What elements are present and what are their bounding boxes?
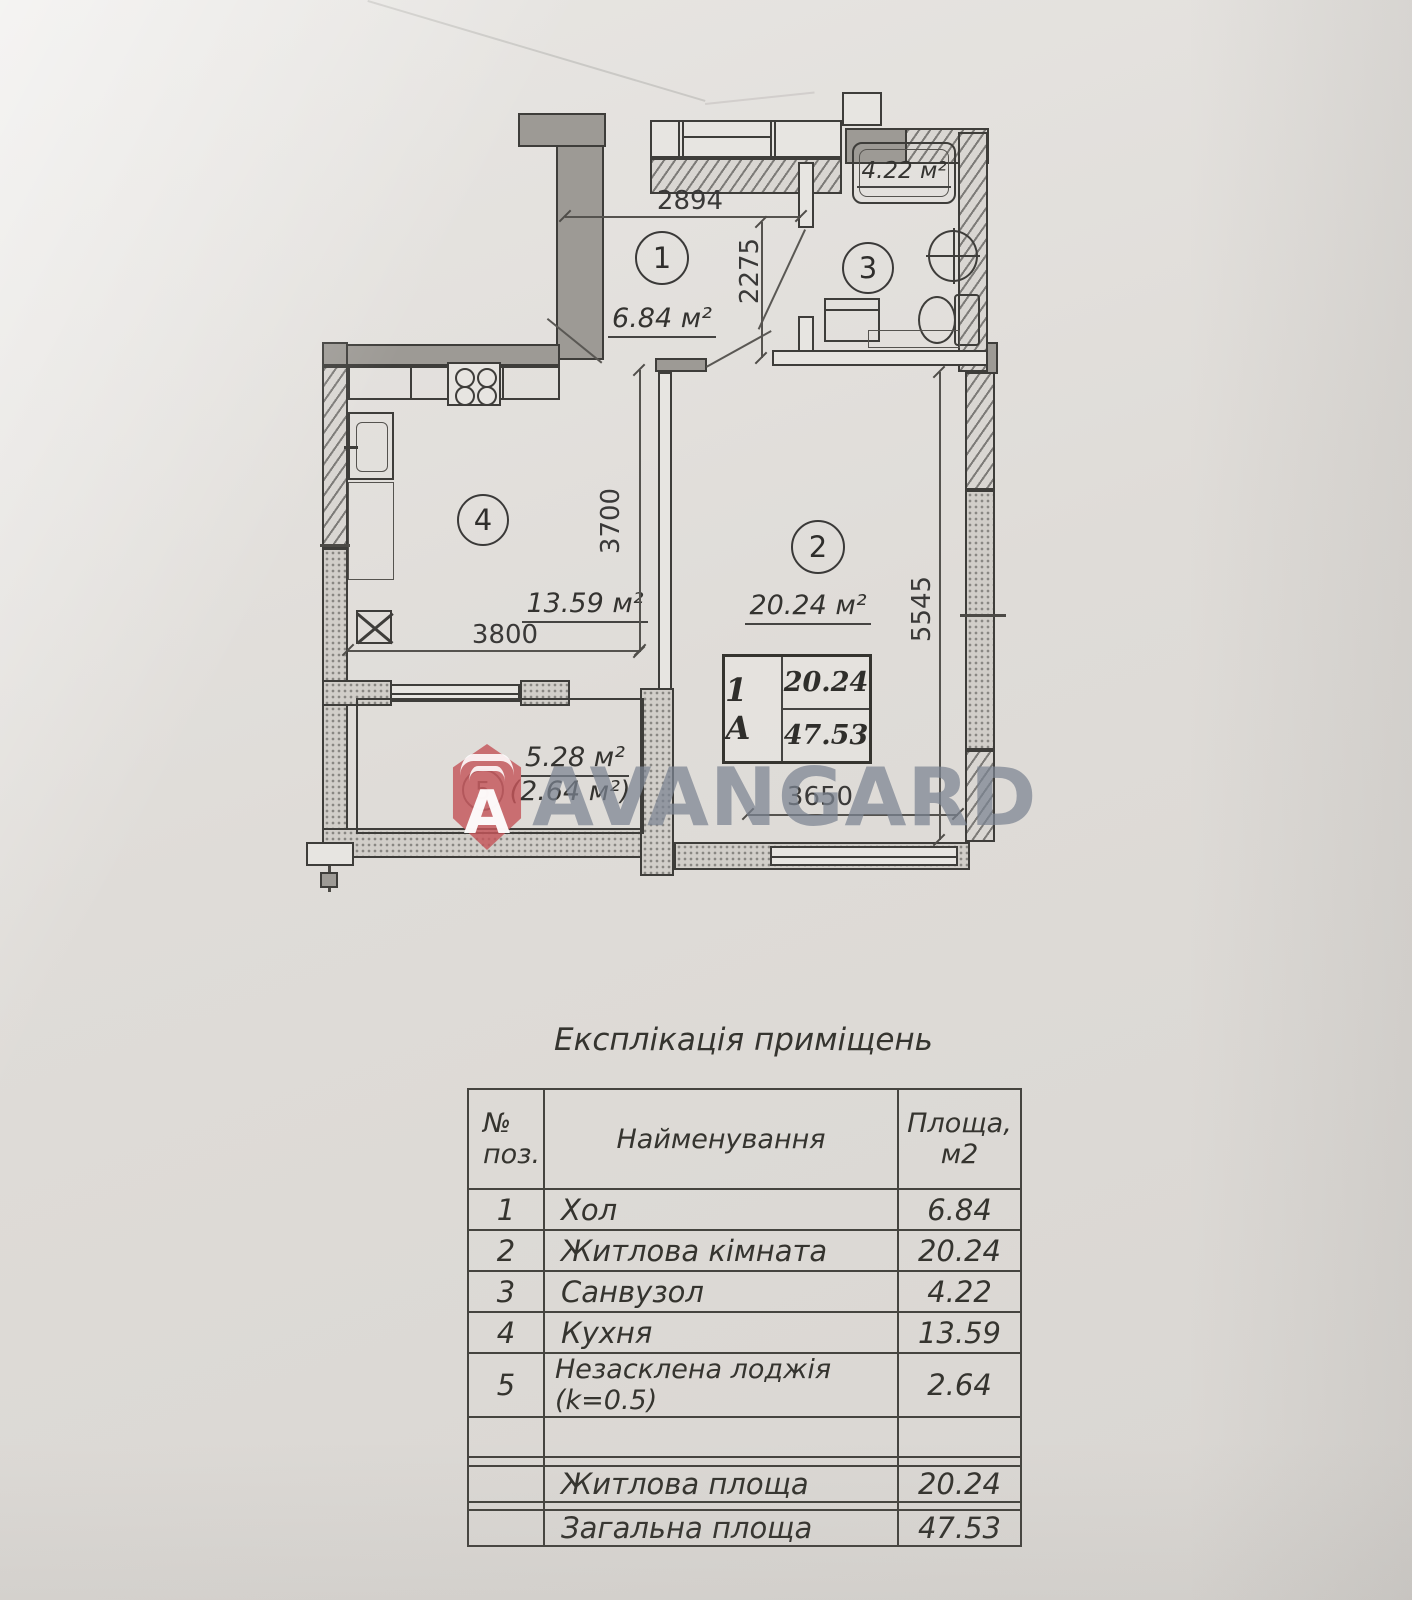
door-frame-mark: [678, 122, 684, 156]
paper-crease: [705, 92, 815, 105]
table-spacer-row: [468, 1457, 1021, 1466]
partition-wall: [798, 162, 814, 228]
entry-door: [650, 120, 842, 158]
living-area-label: 20.24 м²: [733, 590, 883, 625]
door-leaf-line: [684, 136, 770, 138]
window-midline: [392, 693, 518, 695]
partition-wall: [658, 372, 672, 690]
table-row: 3 Санвузол 4.22: [468, 1271, 1021, 1312]
washbasin-cross: [953, 228, 955, 284]
room-number-living: 2: [791, 520, 845, 574]
dimension-hall-width: 2894: [620, 186, 760, 216]
logo-letter: A: [450, 778, 524, 848]
wall-segment: [965, 490, 995, 750]
room-number-kitchen: 4: [457, 494, 509, 546]
wall-segment: [322, 342, 348, 366]
explication-section: Експлікація приміщень № поз. Найменуванн…: [467, 1022, 1020, 1547]
paper-crease: [367, 0, 705, 102]
room-number-hall: 1: [635, 231, 689, 285]
wall-segment: [965, 372, 995, 490]
kitchen-sink-icon: [348, 412, 394, 480]
dimension-line: [348, 650, 640, 652]
hall-area-label: 6.84 м²: [600, 303, 724, 338]
stove-burner: [477, 386, 497, 406]
dimension-kitchen-width: 3800: [440, 620, 570, 650]
kitchen-area-label: 13.59 м²: [515, 588, 655, 623]
stove-burner: [455, 368, 475, 388]
wall-segment: [322, 366, 348, 548]
entry-niche: [842, 92, 882, 126]
stove-icon: [447, 362, 501, 406]
unit-type: 1 А: [725, 657, 783, 761]
stove-burner: [477, 368, 497, 388]
dimension-kitchen-depth: 3700: [596, 476, 626, 566]
sink-basin: [356, 422, 388, 472]
table-summary-row: Житлова площа 20.24: [468, 1466, 1021, 1502]
unit-living-area: 20.24: [783, 657, 869, 710]
table-spacer-row: [468, 1502, 1021, 1510]
table-row: 1 Хол 6.84: [468, 1189, 1021, 1230]
dimension-hall-depth: 2275: [735, 226, 765, 316]
table-row: 4 Кухня 13.59: [468, 1312, 1021, 1353]
unit-areas: 20.24 47.53: [783, 657, 869, 761]
faucet-mark: [344, 446, 358, 449]
table-header-row: № поз. Найменування Площа, м2: [468, 1089, 1021, 1189]
watermark-text: AVANGARD: [532, 752, 1002, 844]
window-midline: [772, 856, 956, 858]
dimension-room-depth: 5545: [907, 559, 937, 659]
washing-machine-line: [826, 309, 878, 311]
unit-label-box: 1 А 20.24 47.53: [722, 654, 872, 764]
kitchen-counter-side: [348, 482, 394, 580]
vent-shaft-icon: [356, 610, 392, 644]
table-row: 5 Незасклена лоджія (k=0.5) 2.64: [468, 1353, 1021, 1417]
table-empty-row: [468, 1417, 1021, 1457]
avangard-logo-icon: A: [450, 744, 524, 850]
stove-burner: [455, 386, 475, 406]
door-frame-mark: [770, 122, 776, 156]
table-summary-row: Загальна площа 47.53: [468, 1510, 1021, 1546]
bathtub-icon: 4.22 м²: [852, 142, 956, 204]
scanned-floor-plan-page: 4.22 м²: [0, 0, 1412, 1600]
wall-joint-line: [320, 544, 350, 547]
window-tick: [960, 614, 1006, 617]
table-row: 2 Житлова кімната 20.24: [468, 1230, 1021, 1271]
balcony-window: [770, 846, 958, 866]
corner-flag-block: [320, 872, 338, 888]
bathroom-shelf: [868, 330, 960, 348]
table-title: Експлікація приміщень: [467, 1022, 1020, 1058]
explication-table: № поз. Найменування Площа, м2 1 Хол 6.84…: [467, 1088, 1022, 1547]
counter-divider: [502, 368, 504, 398]
partition-wall: [772, 350, 988, 366]
counter-divider: [410, 368, 412, 398]
corner-flag-mark: [306, 842, 354, 866]
wall-segment: [556, 145, 604, 360]
wall-segment: [655, 358, 707, 372]
washbasin-icon: [928, 230, 978, 282]
wall-segment: [518, 113, 606, 147]
dimension-line: [639, 370, 641, 652]
room-number-bathroom: 3: [842, 242, 894, 294]
bathroom-area-label: 4.22 м²: [854, 158, 954, 188]
